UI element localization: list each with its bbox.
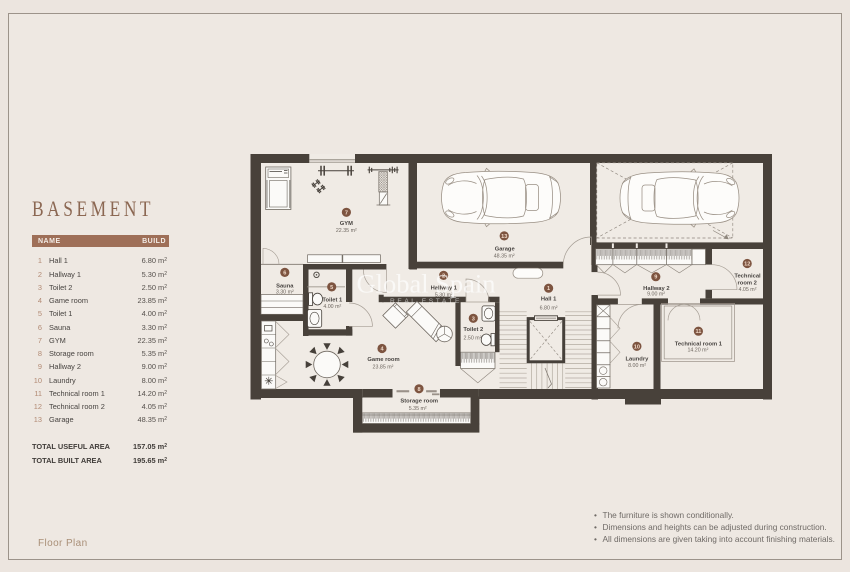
svg-text:48.35 m²: 48.35 m²: [494, 254, 515, 260]
svg-text:GYM: GYM: [340, 221, 353, 227]
svg-text:2.50 m²: 2.50 m²: [464, 336, 482, 342]
svg-text:13: 13: [501, 234, 507, 240]
svg-text:3: 3: [472, 316, 475, 322]
svg-text:9.00 m²: 9.00 m²: [647, 292, 665, 298]
svg-text:6.80 m²: 6.80 m²: [540, 306, 558, 312]
svg-text:5.35 m²: 5.35 m²: [409, 406, 427, 412]
svg-text:Game room: Game room: [367, 357, 399, 363]
svg-text:room 2: room 2: [738, 281, 757, 287]
svg-text:6: 6: [283, 270, 286, 276]
svg-text:10: 10: [634, 344, 640, 350]
svg-text:Garage: Garage: [495, 246, 516, 252]
svg-text:8.00 m²: 8.00 m²: [628, 363, 646, 369]
svg-text:Hall 1: Hall 1: [541, 297, 557, 303]
svg-text:Laundry: Laundry: [625, 357, 649, 363]
svg-text:14.20 m²: 14.20 m²: [687, 348, 708, 354]
svg-text:5: 5: [330, 285, 333, 291]
svg-text:7: 7: [345, 210, 348, 216]
svg-text:Toilet 2: Toilet 2: [463, 327, 483, 333]
svg-text:4.05 m²: 4.05 m²: [739, 287, 757, 293]
svg-text:3.30 m²: 3.30 m²: [276, 289, 294, 295]
svg-text:9: 9: [654, 275, 657, 281]
svg-text:11: 11: [695, 329, 701, 335]
svg-text:22.35 m²: 22.35 m²: [336, 228, 357, 234]
svg-text:4.00 m²: 4.00 m²: [323, 304, 341, 310]
svg-text:REAL ESTATE: REAL ESTATE: [390, 298, 462, 305]
svg-text:12: 12: [744, 262, 750, 268]
svg-text:Global Spain: Global Spain: [356, 269, 495, 299]
svg-text:Toilet 1: Toilet 1: [322, 298, 343, 304]
svg-text:8: 8: [417, 387, 420, 393]
svg-text:23.85 m²: 23.85 m²: [373, 364, 394, 370]
svg-text:1: 1: [547, 286, 550, 292]
svg-text:Storage room: Storage room: [400, 399, 438, 405]
svg-text:Technical: Technical: [734, 274, 761, 280]
